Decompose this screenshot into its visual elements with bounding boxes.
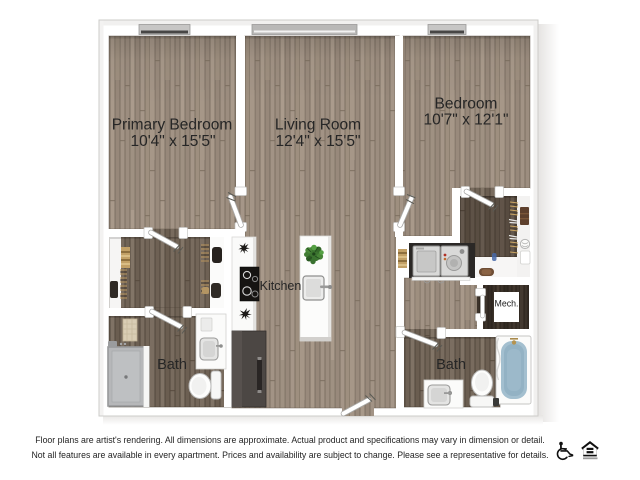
svg-text:Bedroom: Bedroom (435, 96, 498, 113)
svg-text:Not all features are available: Not all features are available in every … (31, 450, 548, 460)
svg-text:10'4" x 15'5": 10'4" x 15'5" (130, 133, 215, 150)
svg-text:Bath: Bath (157, 357, 187, 373)
svg-text:10'7" x 12'1": 10'7" x 12'1" (423, 112, 508, 129)
svg-text:12'4" x 15'5": 12'4" x 15'5" (275, 133, 360, 150)
svg-text:Primary Bedroom: Primary Bedroom (112, 117, 233, 134)
svg-text:Floor plans are artist's rende: Floor plans are artist's rendering. All … (35, 435, 544, 445)
svg-text:Kitchen: Kitchen (260, 279, 302, 293)
svg-text:Living Room: Living Room (275, 117, 361, 134)
svg-text:Mech.: Mech. (495, 299, 519, 309)
svg-text:Bath: Bath (436, 357, 466, 373)
